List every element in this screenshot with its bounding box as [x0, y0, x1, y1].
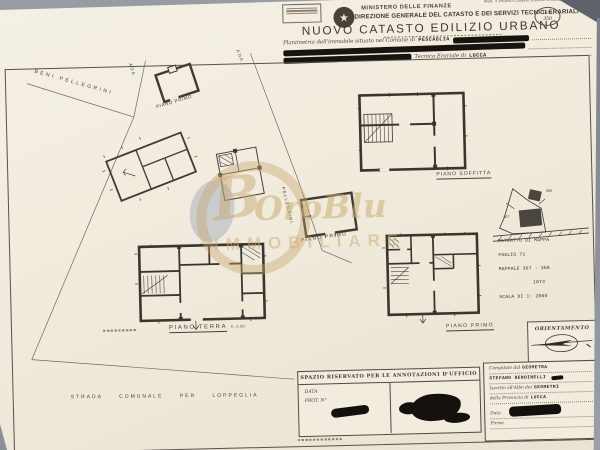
document-content: ★ MINISTERO DELLE FINANZE DIREZIONE GENE… [0, 0, 600, 450]
albo-label: Iscritto all'Albo dei [490, 385, 533, 391]
label-piano-terra-text: PIANO TERRA [169, 324, 227, 333]
annotations-left-cell: DATA PROT. N° [298, 382, 391, 434]
plan-small-left [96, 120, 205, 210]
provincia-value: LUCCA [531, 395, 547, 400]
estratto-line2: FOGLIO 71 [498, 253, 525, 259]
geometra-value: GEOMETRA [522, 365, 547, 371]
redaction-mark [551, 375, 563, 380]
redaction-blob [410, 391, 462, 423]
plan-terra [134, 242, 268, 331]
plan-thin-center [214, 145, 266, 201]
estratto-line3: MAPPALE 367 - 368 [499, 266, 550, 272]
label-piano-terra-note: h. 2.50 [231, 324, 245, 328]
compass-icon [528, 331, 597, 355]
plan-primo-bottom [382, 232, 482, 324]
firma-label: Firma [490, 421, 503, 426]
annotations-box: SPAZIO RISERVATO PER LE ANNOTAZIONI D'UF… [297, 367, 482, 437]
label-piano-soffitta: PIANO SOFFITTA [436, 170, 491, 179]
data-field-label: Data [490, 411, 501, 416]
estratto-line5: SCALA DI 1: 2000 [499, 294, 547, 300]
photo-stage: ★ MINISTERO DELLE FINANZE DIREZIONE GENE… [0, 0, 600, 450]
data-label: DATA [305, 387, 390, 394]
redaction-blob [331, 404, 370, 418]
estratto-line4: 1073 [499, 280, 545, 286]
prot-label: PROT. N° [305, 397, 390, 404]
plan-soffitta [357, 91, 468, 173]
surveyor-name: STEFANO BENDINELLI [489, 375, 546, 381]
provincia-label: della Provincia di [490, 395, 529, 401]
estratto-text: ESTRATTO DI MAPPA FOGLIO 71 MAPPALE 367 … [498, 237, 551, 301]
parcel-368: 368 [546, 189, 552, 193]
compilato-label: Compilato dal [489, 366, 520, 372]
estratto-line1: ESTRATTO DI MAPPA [498, 238, 549, 244]
albo-value: GEOMETRI [534, 385, 559, 391]
redaction-blob [508, 404, 561, 417]
annotations-right-cell [390, 380, 480, 432]
document-paper: ★ MINISTERO DELLE FINANZE DIREZIONE GENE… [0, 0, 600, 450]
geometra-box: Compilato dalGEOMETRA STEFANO BENDINELLI… [483, 360, 599, 442]
label-piano-primo-bottom: PIANO PRIMO [446, 322, 494, 331]
